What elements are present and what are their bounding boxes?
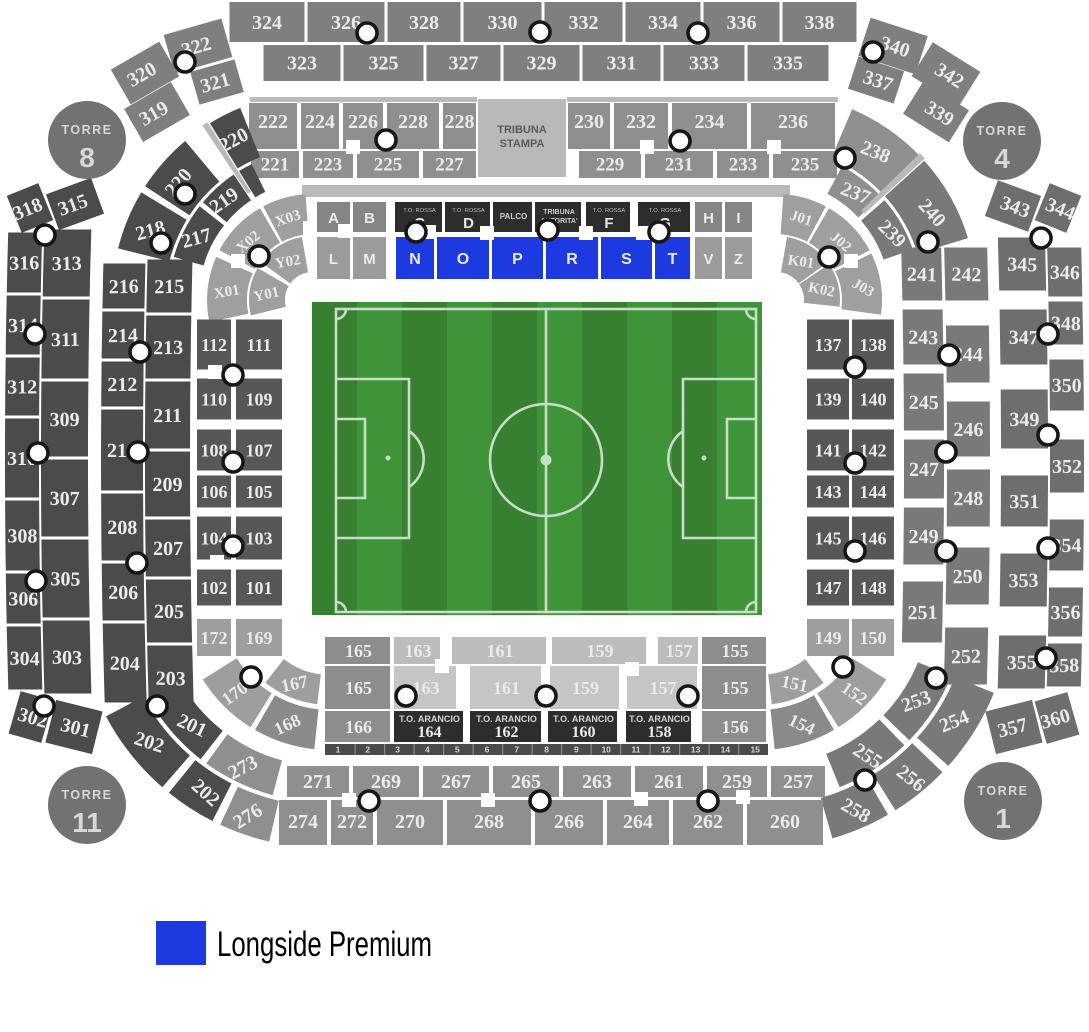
svg-text:333: 333 — [689, 53, 719, 75]
svg-text:O: O — [457, 251, 469, 268]
svg-text:208: 208 — [107, 517, 137, 539]
svg-text:149: 149 — [815, 628, 842, 648]
svg-text:228: 228 — [398, 111, 428, 133]
svg-text:11: 11 — [72, 807, 102, 838]
svg-text:10: 10 — [601, 745, 611, 755]
svg-text:150: 150 — [860, 628, 887, 648]
svg-text:351: 351 — [1009, 491, 1039, 513]
svg-text:264: 264 — [623, 811, 653, 833]
svg-text:STAMPA: STAMPA — [500, 138, 545, 150]
svg-text:147: 147 — [815, 578, 842, 598]
svg-text:103: 103 — [246, 528, 273, 548]
svg-text:14: 14 — [721, 745, 731, 755]
svg-text:327: 327 — [449, 53, 479, 75]
svg-text:303: 303 — [52, 647, 83, 670]
svg-text:248: 248 — [953, 488, 983, 510]
svg-text:346: 346 — [1050, 262, 1080, 285]
svg-text:5: 5 — [455, 745, 460, 755]
svg-text:234: 234 — [695, 111, 725, 133]
svg-text:221: 221 — [261, 155, 290, 176]
svg-text:4: 4 — [425, 745, 430, 755]
svg-text:211: 211 — [153, 405, 182, 427]
svg-text:241: 241 — [907, 264, 937, 287]
svg-text:T.O. ARANCIO: T.O. ARANCIO — [553, 714, 614, 724]
svg-text:15: 15 — [750, 745, 760, 755]
svg-text:245: 245 — [909, 392, 939, 414]
svg-text:311: 311 — [51, 329, 80, 351]
svg-text:7: 7 — [514, 745, 519, 755]
svg-text:143: 143 — [815, 482, 842, 502]
svg-text:251: 251 — [907, 602, 937, 625]
svg-text:316: 316 — [9, 252, 40, 275]
svg-text:265: 265 — [511, 771, 541, 793]
svg-text:246: 246 — [953, 419, 983, 441]
svg-text:159: 159 — [587, 641, 614, 661]
svg-text:172: 172 — [201, 628, 228, 648]
svg-text:161: 161 — [493, 678, 520, 698]
svg-text:I: I — [736, 210, 740, 227]
svg-text:305: 305 — [50, 568, 80, 590]
svg-text:308: 308 — [7, 525, 37, 547]
svg-text:166: 166 — [345, 717, 372, 737]
svg-text:274: 274 — [288, 811, 318, 833]
svg-text:144: 144 — [860, 482, 887, 502]
svg-text:332: 332 — [569, 12, 599, 34]
svg-text:9: 9 — [574, 745, 579, 755]
svg-text:263: 263 — [582, 771, 612, 793]
svg-text:112: 112 — [201, 335, 227, 355]
svg-text:159: 159 — [572, 678, 599, 698]
svg-text:105: 105 — [246, 482, 273, 502]
svg-text:L: L — [329, 251, 338, 268]
svg-text:212: 212 — [107, 374, 137, 396]
svg-text:228: 228 — [445, 111, 475, 133]
svg-text:140: 140 — [860, 389, 887, 409]
svg-text:250: 250 — [952, 566, 982, 588]
svg-text:352: 352 — [1052, 456, 1082, 478]
svg-text:232: 232 — [626, 111, 656, 133]
svg-text:106: 106 — [201, 482, 228, 502]
svg-text:155: 155 — [722, 641, 749, 661]
svg-text:323: 323 — [287, 53, 317, 75]
svg-text:226: 226 — [348, 111, 378, 133]
svg-text:158: 158 — [648, 724, 672, 741]
svg-text:205: 205 — [154, 601, 184, 624]
svg-text:162: 162 — [495, 724, 519, 741]
svg-text:4: 4 — [994, 143, 1010, 174]
svg-text:328: 328 — [409, 12, 439, 34]
svg-text:163: 163 — [405, 641, 432, 661]
svg-text:209: 209 — [152, 474, 182, 496]
svg-text:236: 236 — [778, 111, 808, 133]
svg-text:270: 270 — [395, 811, 425, 833]
svg-text:12: 12 — [661, 745, 671, 755]
svg-text:207: 207 — [153, 538, 183, 560]
svg-text:260: 260 — [770, 811, 800, 833]
svg-text:215: 215 — [154, 276, 184, 299]
svg-text:161: 161 — [487, 641, 514, 661]
svg-text:165: 165 — [345, 678, 372, 698]
svg-text:331: 331 — [607, 53, 637, 75]
svg-text:304: 304 — [9, 648, 40, 671]
svg-text:203: 203 — [155, 668, 186, 691]
svg-text:107: 107 — [246, 440, 273, 460]
svg-text:224: 224 — [305, 111, 335, 133]
svg-text:11: 11 — [632, 745, 641, 755]
svg-text:102: 102 — [201, 578, 228, 598]
svg-text:312: 312 — [7, 376, 37, 398]
svg-text:145: 145 — [815, 528, 842, 548]
svg-text:227: 227 — [435, 155, 464, 176]
svg-text:229: 229 — [596, 155, 625, 176]
svg-text:355: 355 — [1006, 652, 1037, 675]
svg-text:347: 347 — [1009, 327, 1039, 349]
svg-text:325: 325 — [369, 53, 399, 75]
svg-text:TRIBUNA: TRIBUNA — [497, 124, 547, 136]
svg-text:266: 266 — [554, 811, 584, 833]
svg-text:3: 3 — [395, 745, 400, 755]
svg-text:139: 139 — [815, 389, 842, 409]
svg-text:F: F — [604, 215, 613, 232]
svg-text:213: 213 — [153, 337, 183, 359]
svg-text:S: S — [621, 251, 632, 268]
svg-text:261: 261 — [654, 771, 684, 793]
svg-text:169: 169 — [246, 628, 273, 648]
svg-text:230: 230 — [574, 111, 604, 133]
svg-text:148: 148 — [860, 578, 887, 598]
svg-text:269: 269 — [371, 771, 401, 793]
svg-text:A: A — [328, 210, 339, 227]
svg-text:243: 243 — [908, 327, 938, 349]
svg-text:8: 8 — [544, 745, 549, 755]
svg-text:242: 242 — [951, 264, 981, 287]
svg-text:T.O. ARANCIO: T.O. ARANCIO — [476, 714, 537, 724]
svg-text:TORRE: TORRE — [61, 788, 112, 802]
svg-text:160: 160 — [572, 724, 596, 741]
svg-text:1: 1 — [995, 803, 1011, 834]
svg-text:271: 271 — [303, 771, 333, 793]
svg-text:259: 259 — [722, 771, 752, 793]
svg-text:349: 349 — [1009, 409, 1039, 431]
svg-text:T.O. ARANCIO: T.O. ARANCIO — [399, 714, 460, 724]
svg-text:B: B — [364, 210, 375, 227]
svg-text:R: R — [566, 251, 578, 268]
svg-text:330: 330 — [488, 12, 518, 34]
svg-text:268: 268 — [474, 811, 504, 833]
svg-text:338: 338 — [805, 12, 835, 34]
svg-text:216: 216 — [109, 276, 139, 299]
svg-text:307: 307 — [50, 488, 80, 510]
svg-text:TRIBUNA: TRIBUNA — [543, 209, 575, 216]
svg-text:TORRE: TORRE — [976, 124, 1027, 138]
svg-text:8: 8 — [79, 142, 95, 173]
svg-text:235: 235 — [791, 155, 820, 176]
svg-text:350: 350 — [1052, 375, 1082, 397]
svg-text:D: D — [463, 215, 474, 232]
svg-text:PALCO: PALCO — [500, 212, 527, 221]
svg-text:336: 336 — [727, 12, 757, 34]
svg-text:T: T — [668, 251, 678, 268]
svg-text:225: 225 — [374, 155, 403, 176]
svg-text:T.O. ROSSA: T.O. ROSSA — [649, 208, 682, 214]
svg-text:13: 13 — [691, 745, 701, 755]
svg-text:157: 157 — [650, 678, 677, 698]
svg-text:156: 156 — [722, 717, 749, 737]
svg-text:262: 262 — [693, 811, 723, 833]
svg-text:2: 2 — [365, 745, 370, 755]
svg-text:249: 249 — [908, 526, 938, 548]
svg-text:356: 356 — [1050, 602, 1080, 625]
svg-text:TORRE: TORRE — [977, 784, 1028, 798]
svg-text:233: 233 — [729, 155, 758, 176]
svg-text:M: M — [363, 251, 376, 268]
svg-text:109: 109 — [246, 389, 273, 409]
svg-text:H: H — [703, 210, 714, 227]
svg-text:247: 247 — [909, 459, 939, 481]
svg-text:T.O. ROSSA: T.O. ROSSA — [452, 208, 485, 214]
svg-text:T.O. ROSSA: T.O. ROSSA — [593, 208, 626, 214]
svg-text:Z: Z — [734, 251, 743, 268]
svg-text:272: 272 — [337, 811, 367, 833]
svg-text:N: N — [409, 251, 421, 268]
svg-text:141: 141 — [815, 440, 842, 460]
svg-text:101: 101 — [246, 578, 273, 598]
svg-text:267: 267 — [441, 771, 471, 793]
svg-text:309: 309 — [50, 409, 80, 431]
svg-text:252: 252 — [951, 646, 982, 669]
svg-text:329: 329 — [527, 53, 557, 75]
svg-text:222: 222 — [258, 111, 288, 133]
svg-text:165: 165 — [345, 641, 372, 661]
svg-text:138: 138 — [860, 335, 887, 355]
svg-text:TORRE: TORRE — [61, 123, 112, 137]
svg-text:313: 313 — [51, 253, 82, 276]
svg-text:223: 223 — [314, 155, 343, 176]
svg-text:111: 111 — [246, 335, 271, 355]
svg-text:334: 334 — [648, 12, 678, 34]
svg-text:6: 6 — [485, 745, 490, 755]
svg-text:164: 164 — [418, 724, 442, 741]
svg-text:Longside Premium: Longside Premium — [217, 925, 432, 964]
svg-text:204: 204 — [109, 653, 140, 676]
svg-text:335: 335 — [773, 53, 803, 75]
svg-text:T.O. ROSSA: T.O. ROSSA — [403, 208, 436, 214]
svg-text:257: 257 — [783, 771, 813, 793]
svg-text:T.O. ARANCIO: T.O. ARANCIO — [629, 714, 690, 724]
svg-text:1: 1 — [336, 745, 341, 755]
svg-text:157: 157 — [666, 641, 693, 661]
svg-text:P: P — [512, 251, 523, 268]
svg-text:345: 345 — [1007, 254, 1038, 277]
svg-text:155: 155 — [722, 678, 749, 698]
svg-text:V: V — [703, 251, 713, 268]
svg-text:324: 324 — [252, 12, 282, 34]
svg-text:137: 137 — [815, 335, 842, 355]
svg-text:206: 206 — [108, 582, 138, 604]
svg-text:110: 110 — [201, 389, 227, 409]
svg-text:231: 231 — [665, 155, 694, 176]
svg-text:353: 353 — [1008, 570, 1038, 592]
